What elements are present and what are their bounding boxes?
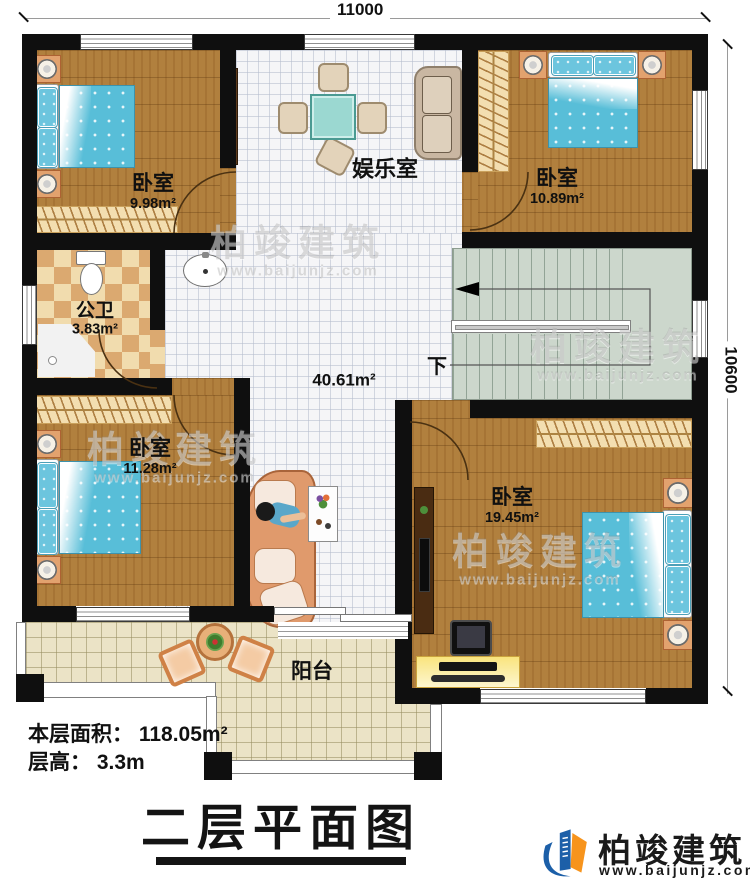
wall: [220, 50, 236, 168]
door-opening: [462, 172, 478, 232]
chair: [278, 102, 308, 134]
brand-logo-icon: [540, 822, 594, 880]
stair-flight-upper: [453, 249, 629, 320]
room-label-entertainment: 娱乐室: [352, 158, 418, 183]
room-label-bedroom-bottom-left: 卧室 11.28m²: [123, 437, 176, 477]
fruit-icon: [316, 519, 322, 525]
wall: [193, 34, 304, 50]
flowers-icon: [315, 493, 331, 509]
person: [254, 496, 306, 540]
watermark-text: 柏竣建筑: [210, 225, 386, 264]
floor-area-text: 本层面积： 118.05m²: [28, 718, 228, 748]
chair: [318, 63, 349, 92]
bed-mattress: [59, 85, 135, 168]
wall: [190, 606, 274, 622]
lamp-icon: [523, 55, 543, 75]
watermark: 柏竣建筑 www.baijunjz.com: [210, 225, 386, 280]
wall: [692, 34, 708, 90]
room-area: 10.89m²: [530, 191, 584, 207]
room-name: 娱乐室: [352, 158, 418, 183]
room-area: 9.98m²: [130, 196, 176, 212]
wall: [470, 400, 708, 418]
wall: [462, 232, 708, 248]
lamp-icon: [667, 624, 689, 646]
bed-sheet-fold: [629, 513, 663, 617]
sofa-cushion: [422, 76, 452, 114]
sink-faucet: [202, 252, 209, 258]
sliding-door-panel: [274, 607, 346, 615]
wall: [462, 50, 478, 172]
stairs-direction-label: 下: [427, 356, 447, 378]
wardrobe: [478, 51, 509, 172]
door-opening: [150, 330, 165, 378]
title-underline: [156, 857, 406, 865]
watermark-text: 柏竣建筑: [530, 329, 706, 368]
audio-device-icon: [439, 662, 497, 671]
sink-drain: [203, 269, 208, 274]
tv-stand: [416, 656, 520, 688]
wall: [234, 378, 250, 622]
chair: [357, 102, 387, 134]
window: [304, 34, 415, 50]
window: [692, 90, 708, 170]
dimension-label-right: 10600: [719, 341, 743, 398]
wall: [395, 688, 480, 704]
window: [80, 34, 193, 50]
watermark: 柏竣建筑 www.baijunjz.com: [530, 329, 706, 384]
balcony-railing-left-horizontal: [16, 682, 216, 698]
dimension-label-top: 11000: [330, 0, 390, 20]
room-label-bedroom-top-left: 卧室 9.98m²: [130, 172, 176, 212]
door-threshold-steps: [278, 622, 408, 639]
hall-sofa: [244, 470, 316, 628]
room-label-bathroom: 公卫 3.83m²: [72, 300, 118, 338]
lamp-icon: [667, 482, 689, 504]
plant-icon: [206, 633, 224, 651]
room-label-bedroom-bottom-right: 卧室 19.45m²: [485, 486, 539, 526]
game-table: [310, 94, 356, 140]
nightstand: [638, 51, 666, 79]
toilet-bowl: [80, 263, 103, 295]
watermark-url: www.baijunjz.com: [210, 264, 386, 280]
shower-drain: [48, 356, 57, 365]
wall: [234, 378, 250, 395]
lamp-icon: [37, 560, 57, 580]
room-name: 卧室: [123, 437, 176, 461]
bed-pillow: [38, 88, 57, 127]
bed-pillow: [38, 128, 57, 167]
balcony-post: [414, 752, 442, 780]
wall: [150, 250, 165, 330]
sofa-cushion: [254, 548, 296, 584]
wardrobe: [536, 420, 692, 448]
sliding-door-panel: [340, 614, 412, 622]
tv-icon: [419, 538, 430, 592]
plant-icon: [420, 506, 428, 514]
floor-height-text: 层高： 3.3m: [28, 746, 145, 776]
balcony-post: [16, 674, 44, 702]
wardrobe: [33, 396, 172, 424]
desk: [414, 487, 434, 634]
nightstand: [33, 55, 61, 83]
room-name: 卧室: [485, 486, 539, 510]
page-title: 二层平面图: [141, 789, 421, 860]
coffee-table: [308, 486, 338, 542]
watermark: 柏竣建筑 www.baijunjz.com: [452, 533, 628, 588]
fruit-icon: [325, 523, 331, 529]
room-area: 11.28m²: [123, 461, 176, 477]
lamp-icon: [37, 434, 57, 454]
bed-pillow: [666, 515, 690, 564]
watermark-url: www.baijunjz.com: [452, 572, 628, 588]
door-opening: [412, 400, 470, 418]
floor-plan-canvas: 11000 10600: [0, 0, 750, 887]
nightstand: [663, 620, 693, 650]
wall: [22, 606, 76, 622]
nightstand: [33, 170, 61, 198]
bed-pillow: [594, 56, 635, 75]
bed-sheet-fold: [60, 86, 91, 167]
bed-pillow: [552, 56, 593, 75]
balcony-railing-bottom: [206, 760, 442, 774]
hall-area-label: 40.61m²: [312, 370, 375, 389]
balcony-railing-left: [16, 622, 26, 680]
bed-sheet-fold: [549, 79, 637, 109]
watermark-url: www.baijunjz.com: [530, 368, 706, 384]
television: [450, 620, 492, 656]
wall: [22, 233, 236, 250]
room-area: 19.45m²: [485, 510, 539, 526]
balcony-table: [196, 623, 234, 661]
brand-logo: 柏竣建筑 www.baijunjz.com: [540, 822, 745, 882]
room-area: 3.83m²: [72, 322, 118, 338]
nightstand: [519, 51, 547, 79]
balcony-post: [204, 752, 232, 780]
lamp-icon: [37, 174, 57, 194]
bed-pillow: [38, 463, 57, 508]
sofa-cushion: [422, 115, 452, 153]
nightstand: [33, 430, 61, 458]
wall: [22, 378, 172, 395]
sofa: [414, 66, 462, 160]
bed-pillow: [666, 566, 690, 614]
room-label-balcony: 阳台: [291, 660, 333, 684]
bed-mattress: [548, 78, 638, 148]
wall: [646, 688, 708, 704]
wall: [395, 400, 412, 690]
brand-url: www.baijunjz.com: [599, 862, 750, 878]
room-name: 公卫: [72, 300, 118, 321]
window: [76, 607, 190, 622]
tv-screen: [457, 626, 485, 648]
window: [22, 285, 37, 345]
door-opening: [172, 378, 234, 395]
lamp-icon: [37, 59, 57, 79]
nightstand: [33, 556, 61, 584]
bed-pillow: [38, 509, 57, 554]
room-label-bedroom-top-right: 卧室 10.89m²: [530, 167, 584, 207]
audio-device-icon: [431, 675, 505, 682]
watermark-text: 柏竣建筑: [452, 533, 628, 572]
room-name: 卧室: [130, 172, 176, 196]
person-head: [256, 502, 275, 521]
lamp-icon: [642, 55, 662, 75]
room-name: 卧室: [530, 167, 584, 191]
nightstand: [663, 478, 693, 508]
window: [480, 689, 646, 704]
wall: [415, 34, 708, 50]
